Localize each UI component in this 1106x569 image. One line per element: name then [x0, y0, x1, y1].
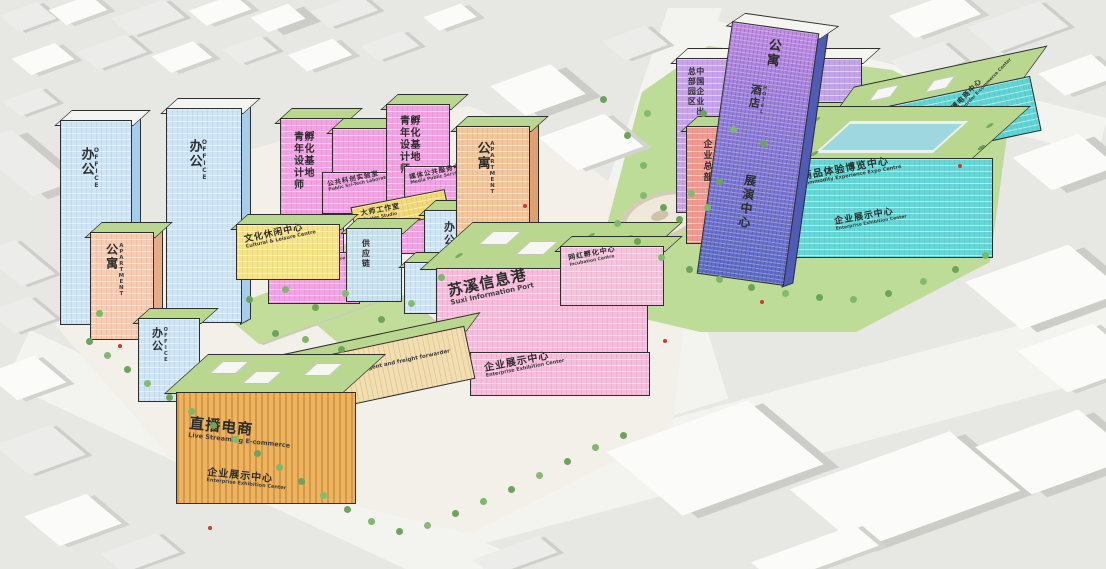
context-building [310, 0, 378, 28]
building-facade: 网红孵化中心 Incubation Centre [560, 246, 664, 306]
building-label: 网红孵化中心 Incubation Centre [568, 246, 618, 268]
building-label: 文化休闲中心 Cultural & Leisure Centre [243, 220, 316, 250]
building-label: 企业展示中心 Enterprise Exhibition Center [483, 348, 565, 380]
context-building [24, 494, 121, 546]
context-building [222, 36, 277, 65]
building-facade: OFFICE 办公 [166, 108, 242, 323]
roof-skylight [478, 231, 522, 245]
building-label-zh: 公寓 [763, 37, 781, 69]
building-label-zh: 企业总部 [701, 139, 710, 183]
context-building [100, 533, 179, 569]
building-facade: 直播电商 Live Streaming E-commerce 企业展示中心 En… [176, 392, 356, 504]
building-supply-chain: 供应链 [346, 228, 402, 302]
context-building [0, 240, 55, 286]
building-suxi-port-terrace: 企业展示中心 Enterprise Exhibition Center [470, 352, 650, 396]
context-building [77, 34, 147, 70]
context-building [0, 2, 57, 32]
building-label: OFFICE 办公 [187, 139, 207, 181]
building-facade: 供应链 [346, 228, 402, 302]
roof-skylight [868, 84, 899, 102]
masterplan-canvas: OFFICE 办公 OFFICE 办公 孵化基地 青年设计师 媒体公共服务中心 [0, 0, 1106, 569]
building-label: OFFICE 办公 [151, 327, 168, 363]
context-building [0, 425, 86, 475]
building-label: APARTMENT 公寓 [475, 141, 494, 195]
context-building [0, 296, 56, 333]
building-cultural-leisure-center: 文化休闲中心 Cultural & Leisure Centre [236, 224, 340, 280]
roof-skylight [925, 75, 956, 93]
building-label-zh: 展演中心 [736, 173, 756, 230]
building-label: 直播电商 Live Streaming E-commerce [188, 415, 292, 450]
context-building [250, 4, 305, 33]
context-building [152, 41, 213, 72]
context-building [423, 3, 477, 30]
building-influencer-incubation-center: 网红孵化中心 Incubation Centre [560, 246, 664, 306]
building-label-zh: 办公 [151, 327, 163, 363]
roof-skylight [242, 371, 282, 384]
context-building [189, 0, 252, 26]
roof-skylight [209, 361, 249, 374]
building-label: 企业展示中心 Enterprise Exhibition Center [834, 205, 908, 232]
building-label-zh: 公寓 [105, 243, 118, 297]
building-label: 展演中心 [736, 173, 756, 230]
roof-skylight [303, 363, 343, 376]
trees-cluster [600, 96, 607, 103]
building-label: 供应链 [361, 239, 369, 269]
roof-skylight [515, 241, 559, 255]
context-building [967, 1, 1068, 52]
context-building [12, 43, 75, 75]
context-building [1038, 54, 1106, 95]
context-building [360, 31, 419, 61]
building-label: 企业总部 [701, 139, 710, 183]
building-label-zh: 青年设计师 [291, 131, 302, 191]
roof-courtyard-pool [815, 121, 969, 153]
building-label: 苏溪信息港 Suxi Information Port [446, 266, 534, 308]
context-building [751, 525, 879, 569]
building-label: APARTMENT 公寓 [105, 243, 123, 297]
building-label: 公寓 [763, 37, 781, 69]
building-label-zh: 办公 [187, 139, 201, 181]
building-facade: 文化休闲中心 Cultural & Leisure Centre [236, 224, 340, 280]
building-label: 公共科创实验室 Public Sci-Tech Laboratory [327, 167, 395, 193]
street-figures [118, 344, 122, 348]
building-label: HOTEL 酒店 [747, 83, 768, 115]
building-label: 孵化基地 青年设计师 [291, 131, 312, 191]
building-facade: 企业展示中心 Enterprise Exhibition Center [470, 352, 650, 396]
building-livestream-ecommerce: 直播电商 Live Streaming E-commerce 企业展示中心 En… [176, 392, 356, 504]
trees-cluster [86, 338, 93, 345]
building-label: OFFICE 办公 [79, 147, 99, 189]
context-building [111, 0, 185, 36]
building-office-tower-east: OFFICE 办公 [166, 108, 242, 323]
building-label: 企业展示中心 Enterprise Exhibition Center [206, 467, 287, 492]
context-building [490, 64, 586, 116]
context-building [48, 0, 107, 25]
context-building [2, 88, 57, 117]
plaza-center [650, 208, 670, 222]
building-label-zh: 孵化基地 [302, 131, 313, 191]
context-building [288, 39, 353, 72]
building-label-zh: 供应链 [361, 239, 369, 269]
building-label-zh: 公寓 [475, 141, 489, 195]
building-label-zh: 办公 [79, 147, 93, 189]
context-building [889, 0, 981, 38]
